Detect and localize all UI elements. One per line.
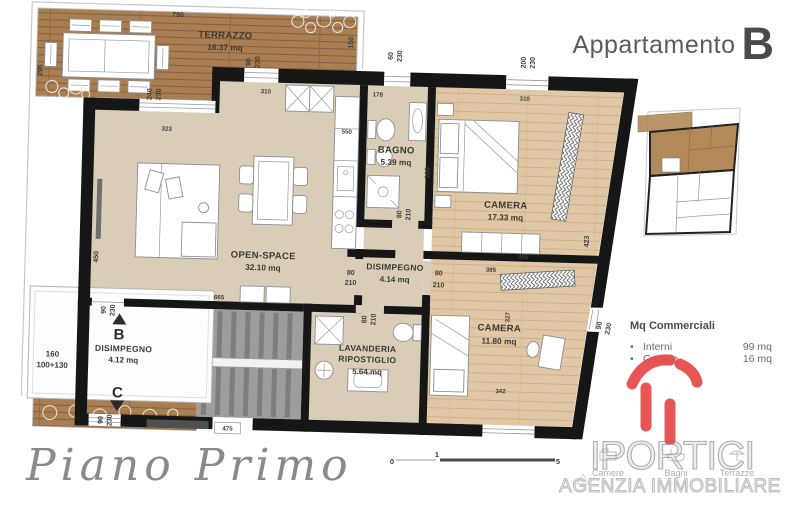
title-letter: B bbox=[742, 18, 775, 69]
dim-label: 385 bbox=[486, 267, 497, 274]
room-label: DISIMPEGNO bbox=[366, 261, 424, 273]
dim-label: 230 bbox=[397, 50, 404, 62]
dim-label: 450 bbox=[93, 251, 100, 263]
dim-label: 475 bbox=[222, 425, 233, 432]
stairs-up-label: B bbox=[113, 326, 124, 343]
dim-label: 230 bbox=[530, 57, 537, 69]
dim-label: 790 bbox=[172, 12, 184, 19]
kitchen-counter bbox=[331, 96, 359, 249]
wardrobe bbox=[461, 232, 540, 254]
dim-label: 80 bbox=[347, 270, 355, 277]
floor-name: Piano Primo bbox=[26, 440, 353, 491]
title-prefix: Appartamento bbox=[572, 31, 735, 59]
dim-label: 210 bbox=[433, 282, 445, 289]
dim-label: 80 bbox=[396, 210, 403, 218]
washing-machine bbox=[315, 316, 344, 345]
room-area: 5.39 mq bbox=[380, 157, 411, 168]
dim-label: 210 bbox=[370, 314, 377, 326]
dim-label: 210 bbox=[405, 208, 412, 220]
dim-label: 90 bbox=[596, 321, 604, 330]
room-label: DISIMPEGNO bbox=[95, 343, 153, 355]
room-label: OPEN-SPACE bbox=[231, 250, 296, 263]
page-title: AppartamentoB bbox=[560, 18, 774, 70]
dim-label: 310 bbox=[261, 88, 272, 95]
bathroom-sink bbox=[409, 102, 427, 140]
dim-label: 210 bbox=[345, 280, 357, 287]
room-area: 4.12 mq bbox=[108, 355, 138, 365]
room-area: 4.14 mq bbox=[380, 275, 410, 285]
scale-mid: 1 bbox=[435, 450, 439, 459]
room-label: TERRAZZO bbox=[198, 30, 252, 43]
legend-value: 16 mq bbox=[728, 353, 772, 365]
room-label: LAVANDERIA bbox=[339, 343, 397, 355]
dim-label: 230 bbox=[110, 304, 117, 316]
scale-start: 0 bbox=[390, 457, 394, 466]
dim-label: 80 bbox=[435, 270, 443, 277]
dim-label: 550 bbox=[341, 129, 352, 136]
kitchen-cabinets bbox=[285, 85, 334, 112]
toilet bbox=[393, 323, 421, 342]
dim-label: 230 bbox=[254, 56, 261, 68]
room-area: 5.64 mq bbox=[352, 367, 382, 377]
dim-label: 240 bbox=[147, 88, 154, 100]
room-label: CAMERA bbox=[477, 322, 521, 334]
room-label: CAMERA bbox=[484, 200, 528, 212]
dim-label: 230 bbox=[156, 88, 163, 100]
key-plan bbox=[634, 106, 752, 238]
side-table bbox=[198, 203, 208, 213]
dim-label: 342 bbox=[495, 388, 506, 395]
room-label: RIPOSTIGLIO bbox=[338, 354, 396, 366]
stairs-down-label: C bbox=[112, 384, 123, 401]
plan-rotated-group: 475 bbox=[20, 1, 640, 445]
dim-label: 60 bbox=[388, 52, 395, 60]
laundry-sink bbox=[315, 361, 333, 379]
dim-label: 230 bbox=[106, 414, 113, 426]
dim-label: 385 bbox=[518, 254, 529, 261]
room-area: 11.80 mq bbox=[481, 336, 516, 347]
key-plan-stairs bbox=[662, 158, 680, 172]
dim-label: 80 bbox=[361, 315, 368, 323]
toilet bbox=[368, 118, 396, 141]
dim-label: 423 bbox=[584, 235, 591, 247]
dim-label: 310 bbox=[519, 96, 530, 103]
scale-bar: 0 1 5 bbox=[390, 450, 560, 466]
bed-single bbox=[429, 315, 469, 396]
dim-label: 200 bbox=[521, 57, 528, 69]
shower bbox=[367, 175, 400, 208]
legend-title: Mq Commerciali bbox=[630, 320, 772, 332]
logo-arch-icon bbox=[618, 348, 710, 444]
dim-label: 150 bbox=[348, 37, 355, 49]
dim-label: 90 bbox=[98, 416, 105, 424]
dim-label: 100+130 bbox=[36, 360, 68, 370]
bed-double bbox=[437, 119, 519, 193]
dim-label: 90 bbox=[101, 306, 108, 314]
room-area: 32.10 mq bbox=[245, 262, 281, 273]
nightstand bbox=[437, 103, 453, 115]
dim-label: 323 bbox=[161, 126, 172, 133]
dim-label: 665 bbox=[214, 294, 225, 301]
room-label: BAGNO bbox=[378, 145, 415, 157]
dim-label: 178 bbox=[373, 91, 384, 98]
room-area: 17.33 mq bbox=[488, 212, 524, 223]
dim-label: 230 bbox=[604, 322, 613, 335]
legend-value: 99 mq bbox=[728, 341, 772, 353]
nightstand bbox=[435, 195, 451, 207]
dim-label: 308 bbox=[424, 167, 431, 179]
floor-plan-page: 475 bbox=[0, 0, 800, 506]
dim-label: 296 bbox=[37, 64, 44, 76]
dim-label: 327 bbox=[504, 311, 511, 322]
dim-label: 160 bbox=[46, 349, 60, 358]
logo-subtitle: AGENZIA IMMOBILIARE bbox=[548, 476, 792, 498]
dim-label: 90 bbox=[246, 58, 253, 66]
room-area: 16.37 mq bbox=[207, 42, 243, 53]
